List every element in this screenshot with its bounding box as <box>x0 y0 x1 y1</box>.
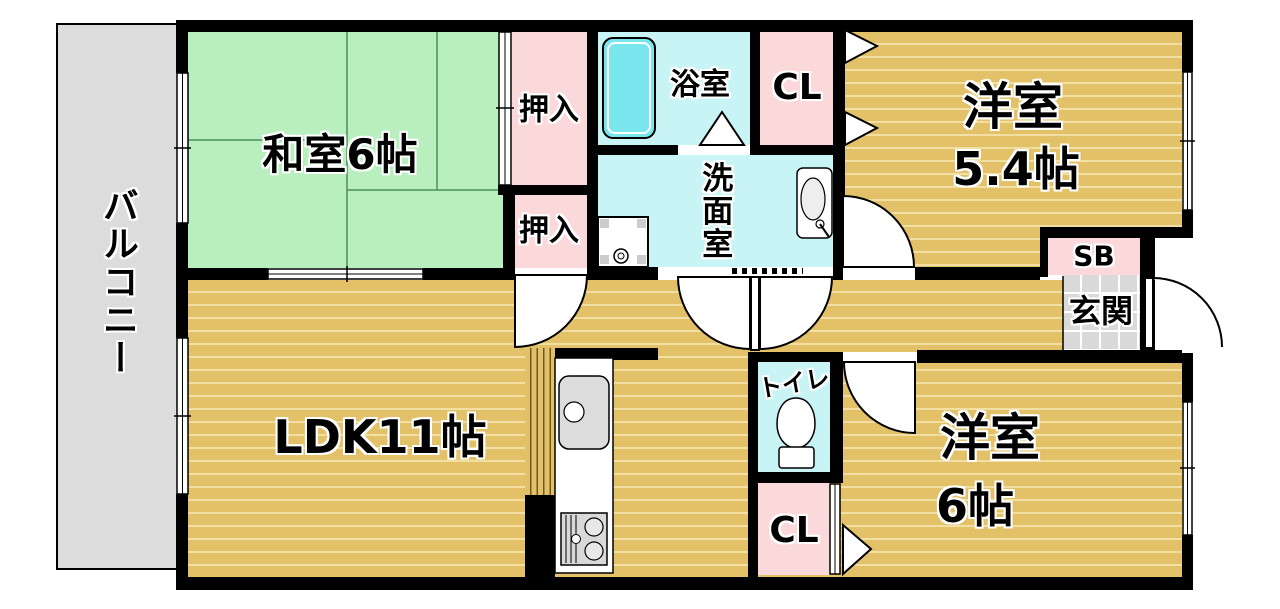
room-label-washitsu: 和室6帖 <box>262 133 417 177</box>
room-label-yoshitsu6-line2: 6帖 <box>936 482 1014 530</box>
floorplan: バルコニー 和室6帖 押入 押入 浴室 CL 洗面室 洋室 5.4帖 SB 玄関… <box>0 0 1280 609</box>
room-label-yoshitsu54-line1: 洋室 <box>963 81 1063 134</box>
room-label-ldk: LDK11帖 <box>273 413 486 461</box>
washitsu-sliding-door <box>268 269 423 279</box>
room-label-bathroom: 浴室 <box>670 69 730 101</box>
room-label-genkan: 玄関 <box>1069 295 1133 329</box>
room-label-oshiire-bottom: 押入 <box>519 215 579 247</box>
room-label-yoshitsu54-line2: 5.4帖 <box>952 145 1080 193</box>
balcony-label: バルコニー <box>98 187 136 377</box>
room-label-oshiire-top: 押入 <box>519 94 579 126</box>
room-label-yoshitsu6-line1: 洋室 <box>940 412 1040 465</box>
room-label-closet-bottom: CL <box>769 512 818 550</box>
entrance-outside <box>1155 238 1193 352</box>
kitchen-counter-bar <box>525 348 555 495</box>
room-label-closet-top: CL <box>772 69 821 107</box>
room-label-washroom: 洗面室 <box>698 162 731 261</box>
room-label-shoebox: SB <box>1073 241 1115 270</box>
yoshitsu54-window <box>1180 72 1195 210</box>
yoshitsu6-window <box>1180 402 1195 535</box>
